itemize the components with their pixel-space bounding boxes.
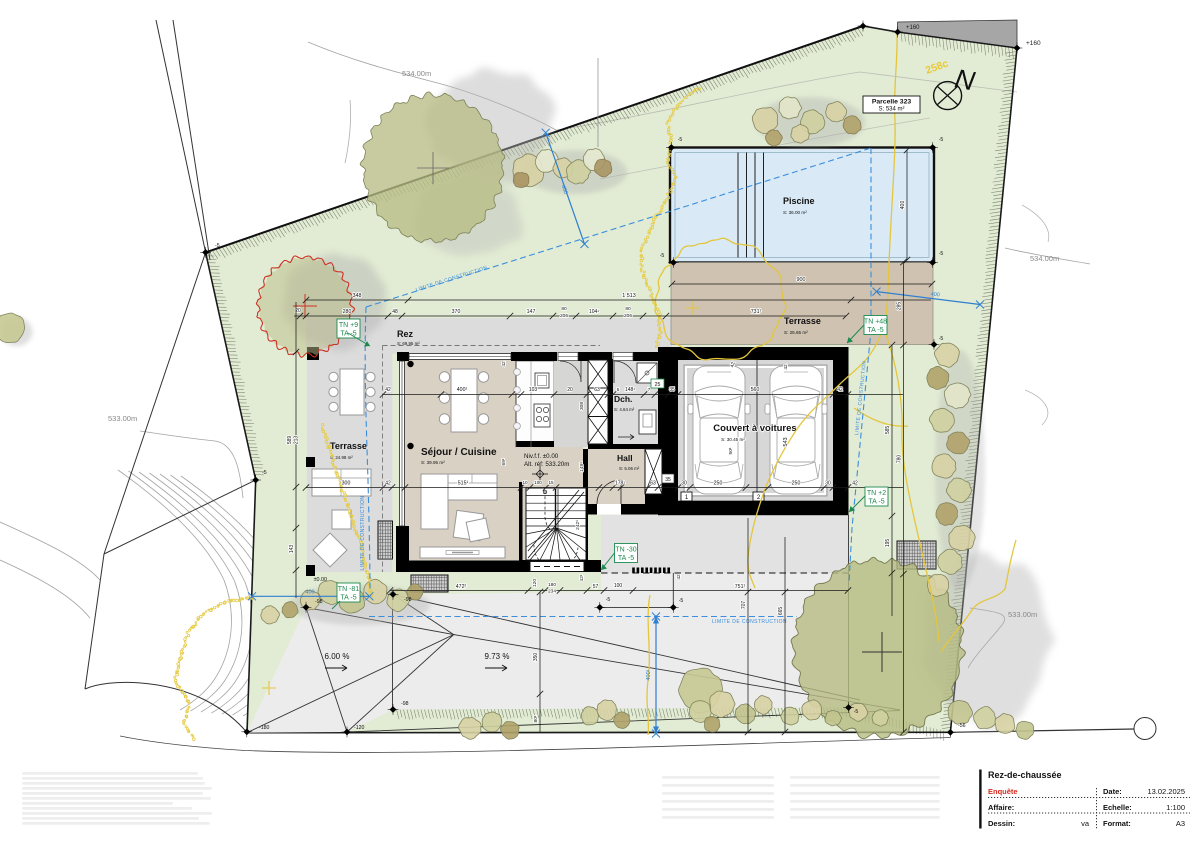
svg-text:S: 30.45 m²: S: 30.45 m² [721,437,745,442]
svg-text:120: 120 [532,579,538,587]
svg-text:-5: -5 [939,137,944,143]
svg-text:13.02.2025: 13.02.2025 [1147,787,1185,796]
svg-text:534.00m: 534.00m [1030,254,1059,263]
svg-text:585: 585 [885,426,891,435]
svg-text:S: 36.00 m²: S: 36.00 m² [783,210,807,215]
svg-text:Echelle:: Echelle: [1103,803,1132,812]
svg-text:35: 35 [669,387,675,393]
svg-text:400: 400 [930,291,940,298]
svg-text:42: 42 [385,387,391,393]
svg-text:LIMITE DE CONSTRUCTION: LIMITE DE CONSTRUCTION [360,496,366,571]
svg-text:Dch.: Dch. [614,394,632,404]
svg-text:48: 48 [392,309,398,315]
svg-text:533.00m: 533.00m [108,414,137,423]
svg-text:LIMITE DE CONSTRUCTION: LIMITE DE CONSTRUCTION [712,619,787,625]
svg-text:280: 280 [343,309,352,315]
svg-text:400¹: 400¹ [646,669,652,680]
svg-text:560: 560 [751,387,760,393]
svg-text:TA -5: TA -5 [868,499,884,506]
svg-text:+160: +160 [1026,40,1041,47]
svg-text:S: 39.95 m²: S: 39.95 m² [421,460,445,465]
svg-text:42: 42 [501,361,507,367]
svg-text:900: 900 [797,277,806,283]
svg-text:30: 30 [681,481,687,487]
svg-text:Enquête: Enquête [988,787,1018,796]
svg-text:Niv.f.f. ±0.00: Niv.f.f. ±0.00 [524,453,559,460]
svg-text:80¹: 80¹ [533,715,539,722]
svg-text:-120: -120 [354,725,364,731]
svg-text:-180: -180 [259,725,269,731]
svg-text:10: 10 [522,480,528,485]
svg-text:-5: -5 [939,336,944,342]
svg-text:Terrasse: Terrasse [330,441,367,451]
svg-text:80: 80 [625,306,631,312]
svg-text:250: 250 [792,481,801,487]
svg-text:80: 80 [561,306,567,312]
svg-text:42: 42 [837,387,843,393]
svg-text:Rez-de-chaussée: Rez-de-chaussée [988,770,1062,780]
svg-text:-5: -5 [939,251,944,257]
svg-text:543: 543 [783,437,789,446]
svg-text:780: 780 [897,455,903,464]
svg-text:308: 308 [579,402,585,410]
svg-text:Parcelle 323: Parcelle 323 [872,99,912,106]
svg-text:TN -81: TN -81 [338,586,360,593]
svg-text:400: 400 [900,201,906,210]
svg-text:Séjour / Cuisine: Séjour / Cuisine [421,447,497,458]
svg-text:-5: -5 [262,470,267,476]
svg-text:-5: -5 [606,597,611,603]
svg-text:42: 42 [783,364,789,370]
svg-text:-5: -5 [215,243,220,249]
svg-text:213: 213 [294,436,300,445]
svg-text:534.00m: 534.00m [402,69,431,78]
svg-text:35: 35 [665,477,671,483]
svg-text:100: 100 [534,480,542,485]
svg-text:TA -5: TA -5 [340,595,356,602]
svg-text:50¹: 50¹ [728,447,734,454]
svg-text:195: 195 [885,539,891,548]
svg-text:TA -5: TA -5 [618,555,634,562]
svg-text:9.73 %: 9.73 % [485,652,510,661]
svg-text:515¹: 515¹ [458,481,469,487]
svg-text:100: 100 [614,583,623,589]
svg-text:Affaire:: Affaire: [988,803,1014,812]
svg-text:-5: -5 [679,598,684,604]
svg-text:147: 147 [527,309,536,315]
svg-text:42¹: 42¹ [579,574,585,581]
svg-text:±0.00: ±0.00 [314,577,327,583]
svg-text:400¹: 400¹ [457,387,468,393]
svg-text:348: 348 [353,293,362,299]
svg-text:103: 103 [529,387,538,393]
svg-text:Format:: Format: [1103,819,1131,828]
svg-text:A3: A3 [1176,819,1185,828]
svg-text:TN +2: TN +2 [867,490,886,497]
svg-text:63: 63 [650,481,656,487]
svg-text:va: va [1081,819,1090,828]
svg-text:665: 665 [778,607,784,616]
svg-text:370: 370 [452,309,461,315]
svg-text:350: 350 [533,653,539,662]
svg-text:Couvert à voitures: Couvert à voitures [713,423,796,434]
svg-text:206: 206 [560,313,568,319]
svg-text:242¹: 242¹ [575,520,581,530]
svg-text:63: 63 [594,387,600,393]
svg-text:Alt. réf: 533.20m: Alt. réf: 533.20m [524,461,569,468]
svg-text:TA -5: TA -5 [867,327,883,334]
svg-text:42: 42 [676,574,682,580]
svg-text:148¹: 148¹ [625,387,635,393]
svg-text:30: 30 [825,481,831,487]
svg-text:42: 42 [852,481,858,487]
svg-text:751¹: 751¹ [735,584,746,590]
svg-text:1 513: 1 513 [622,293,636,299]
svg-text:S: 534 m²: S: 534 m² [878,107,904,113]
svg-text:42: 42 [385,481,391,487]
svg-text:TN -30: TN -30 [615,547,637,554]
svg-text:180: 180 [548,582,556,588]
svg-text:-5: -5 [660,253,665,259]
svg-text:300: 300 [342,481,351,487]
svg-text:178¹: 178¹ [615,481,625,487]
svg-text:Terrasse: Terrasse [784,316,821,326]
svg-text:15: 15 [548,480,554,485]
svg-text:6.00 %: 6.00 % [325,652,350,661]
svg-text:-98: -98 [401,701,409,707]
svg-text:707: 707 [741,601,747,610]
svg-text:Piscine: Piscine [783,196,815,206]
svg-text:104¹: 104¹ [589,309,599,315]
svg-text:-98: -98 [315,599,323,605]
svg-text:250: 250 [714,481,723,487]
svg-text:Dessin:: Dessin: [988,819,1015,828]
svg-text:20: 20 [567,387,573,393]
svg-text:Rez: Rez [397,329,414,339]
svg-text:-56: -56 [958,723,966,729]
svg-text:25: 25 [655,382,661,388]
svg-text:69¹: 69¹ [501,458,507,465]
svg-text:-5: -5 [678,137,683,143]
svg-text:285: 285 [897,302,903,311]
svg-text:1:100: 1:100 [1166,803,1185,812]
svg-text:206: 206 [624,313,632,319]
svg-text:S: 5.06 m²: S: 5.06 m² [619,466,640,471]
svg-text:149¹: 149¹ [579,462,585,472]
svg-text:Date:: Date: [1103,787,1122,796]
svg-text:S: 25.65 m²: S: 25.65 m² [784,330,808,335]
svg-text:7: 7 [648,387,651,392]
svg-text:TN +48: TN +48 [864,319,887,326]
svg-text:TN +9: TN +9 [339,322,358,329]
svg-text:-98: -98 [404,597,412,603]
svg-text:-5: -5 [854,709,859,715]
svg-text:5: 5 [617,387,620,392]
svg-text:731¹: 731¹ [751,309,762,315]
svg-text:472²: 472² [456,584,467,590]
svg-text:143: 143 [289,545,295,554]
svg-text:533.00m: 533.00m [1008,610,1037,619]
svg-text:Hall: Hall [617,453,633,463]
svg-text:57: 57 [593,584,599,590]
svg-text:+160: +160 [906,25,920,31]
svg-text:589: 589 [287,436,293,445]
svg-text:S: 4.64 m²: S: 4.64 m² [614,407,635,412]
svg-text:400: 400 [305,590,314,596]
svg-text:234: 234 [548,589,556,595]
